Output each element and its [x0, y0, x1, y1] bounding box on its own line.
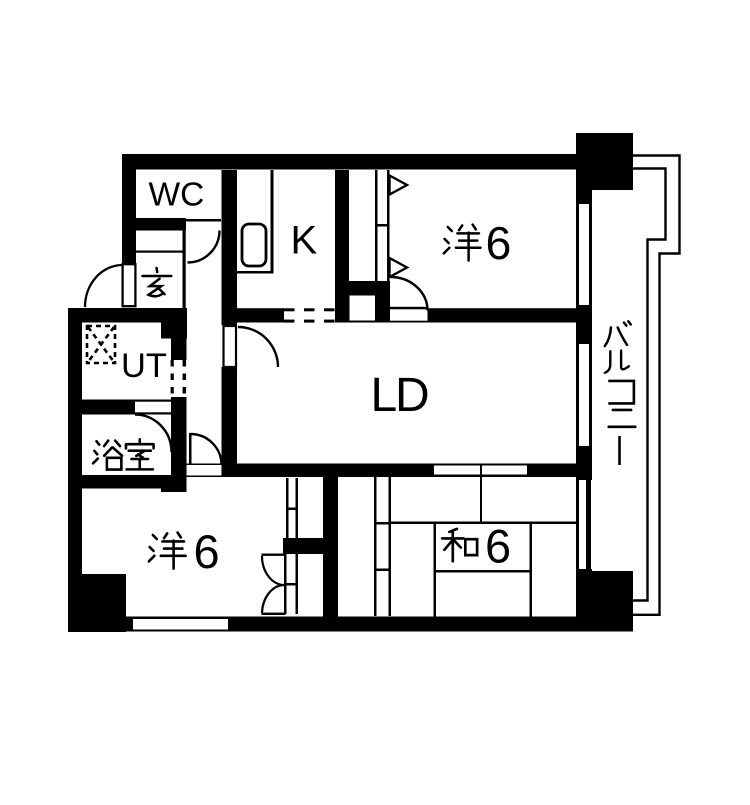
- svg-text:6: 6: [485, 520, 511, 573]
- svg-text:6: 6: [486, 217, 512, 269]
- svg-text:LD: LD: [371, 369, 428, 422]
- svg-text:6: 6: [194, 525, 220, 578]
- svg-text:K: K: [291, 219, 318, 263]
- svg-text:UT: UT: [121, 347, 167, 385]
- svg-text:WC: WC: [149, 177, 205, 214]
